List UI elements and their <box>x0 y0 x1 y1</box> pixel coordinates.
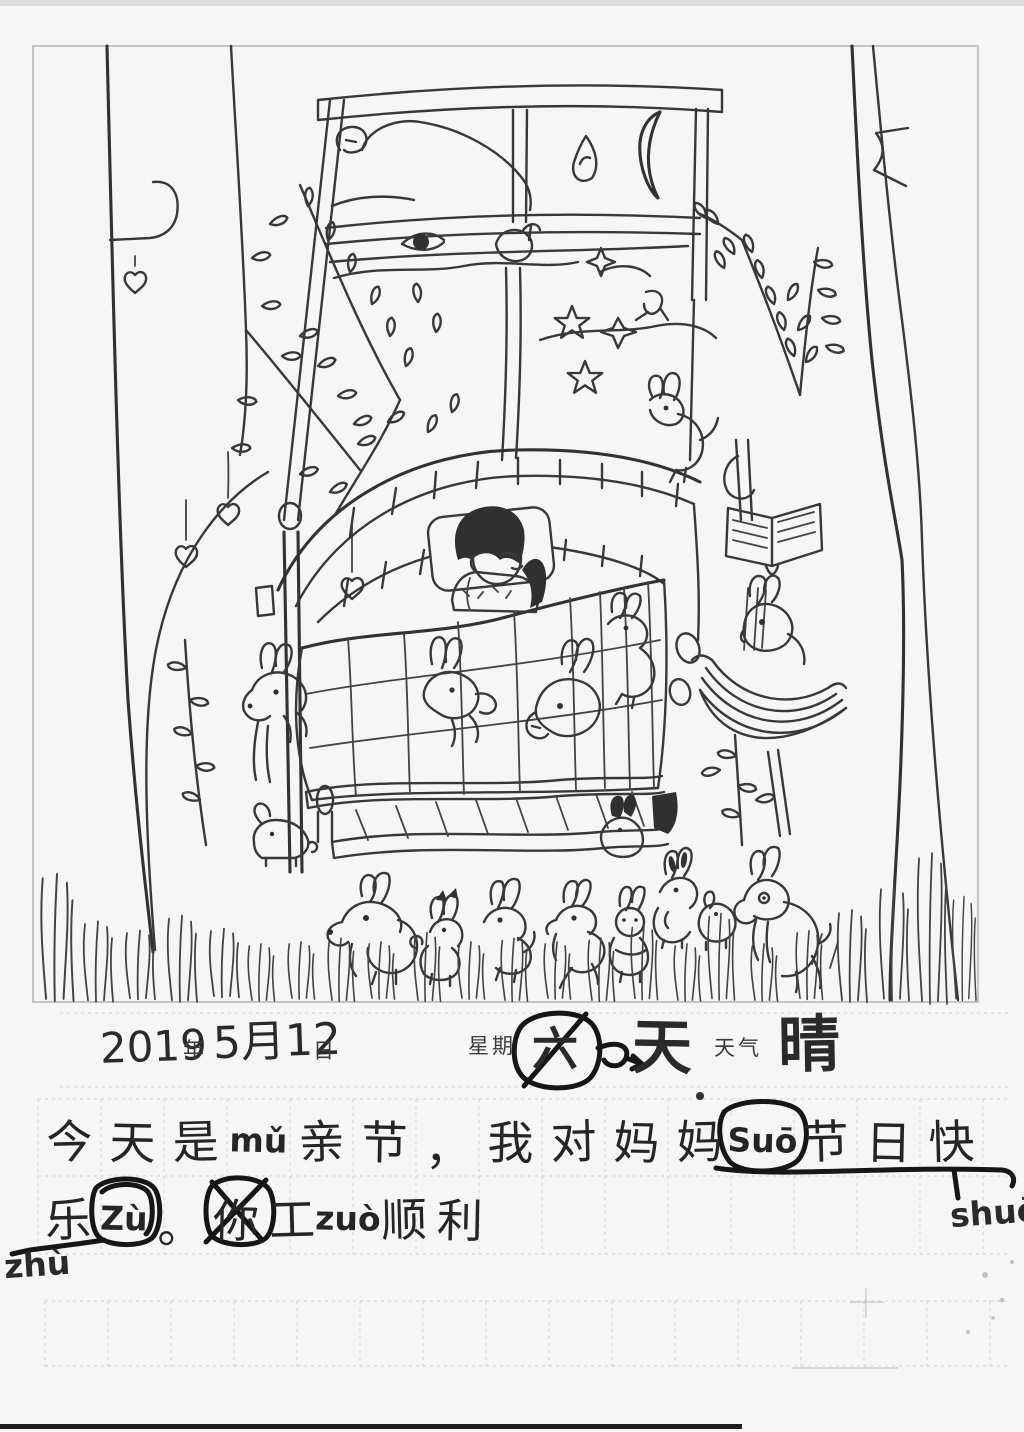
diary-page: 2019 年 5月12 日 星期 六 天 天气 晴 今天是mǔ亲节，我对妈妈Su… <box>0 0 1024 1432</box>
diary-char: 是 <box>163 1099 228 1179</box>
scan-edge <box>0 0 1024 6</box>
rabbit-in-nest <box>741 576 804 664</box>
crescent-moon <box>640 112 660 198</box>
rabbit-3 <box>484 879 535 982</box>
diary-line-1: 今天是mǔ亲节，我对妈妈Suō节日快 <box>38 1100 983 1186</box>
grass-tufts <box>41 854 976 1002</box>
diary-char: 天 <box>100 1100 165 1179</box>
window-eye <box>402 234 444 250</box>
book-stand <box>724 440 822 650</box>
weather-label: 天气 <box>714 1038 762 1059</box>
diary-char: 。 <box>151 1177 209 1264</box>
date-day-label: 日 <box>313 1041 337 1062</box>
diary-char: 你 <box>207 1178 265 1257</box>
diary-char: 利 <box>431 1178 489 1257</box>
diary-char: mǔ <box>226 1100 291 1179</box>
diary-char: 顺 <box>375 1177 433 1256</box>
window-right-pole <box>690 109 708 460</box>
diary-char: 我 <box>478 1100 543 1179</box>
teardrop <box>573 136 596 181</box>
weather-value: 晴 <box>777 1013 840 1076</box>
diary-char: 妈 <box>604 1100 669 1179</box>
nest-swirls <box>667 630 703 707</box>
stars <box>555 248 668 393</box>
diary-char: 今 <box>37 1099 102 1179</box>
window-left-pole <box>284 100 344 520</box>
diary-char: Suō <box>730 1100 795 1179</box>
diary-char: 节 <box>793 1099 858 1179</box>
diary-char: 日 <box>856 1100 921 1179</box>
diary-char: 快 <box>919 1099 984 1179</box>
ink-dot <box>696 1092 704 1100</box>
diary-char: 亲 <box>289 1099 354 1179</box>
window-center-pole <box>513 110 527 222</box>
diary-char: zuò <box>319 1178 377 1257</box>
rabbit-quilt-left <box>243 643 306 782</box>
diary-char: ， <box>415 1099 480 1187</box>
rabbit-under-bed <box>254 804 317 866</box>
weekday-original: 六 <box>532 1026 578 1072</box>
rabbit-1 <box>327 873 422 984</box>
margin-note-shuo: shuō <box>949 1193 1024 1232</box>
diary-char: Zù <box>95 1178 153 1257</box>
diary-char: 工 <box>263 1177 321 1256</box>
lemon-fish <box>496 224 540 261</box>
left-sprig <box>185 640 206 845</box>
diary-char: 妈 <box>667 1099 732 1179</box>
margin-note-zhu: zhù <box>3 1246 71 1284</box>
bottom-rabbits <box>327 847 831 992</box>
rabbit-quilt-corner <box>608 593 654 708</box>
quilt <box>296 580 666 800</box>
left-sprig-leaves <box>168 658 215 805</box>
rabbit-quilt-middle <box>424 637 496 746</box>
diary-char: 对 <box>541 1099 606 1179</box>
trunk-flag <box>874 128 908 186</box>
rabbit-6 <box>654 848 697 948</box>
right-tree <box>692 46 958 1000</box>
weekday-label: 星期 <box>468 1036 516 1057</box>
weekday-correction: 天 <box>631 1017 692 1078</box>
diary-line-2: 乐Zù。你工zuò顺利 <box>40 1178 488 1264</box>
date-year-label: 年 <box>183 1040 207 1061</box>
scan-bottom-line <box>0 1424 742 1429</box>
diary-char: 节 <box>352 1100 417 1179</box>
